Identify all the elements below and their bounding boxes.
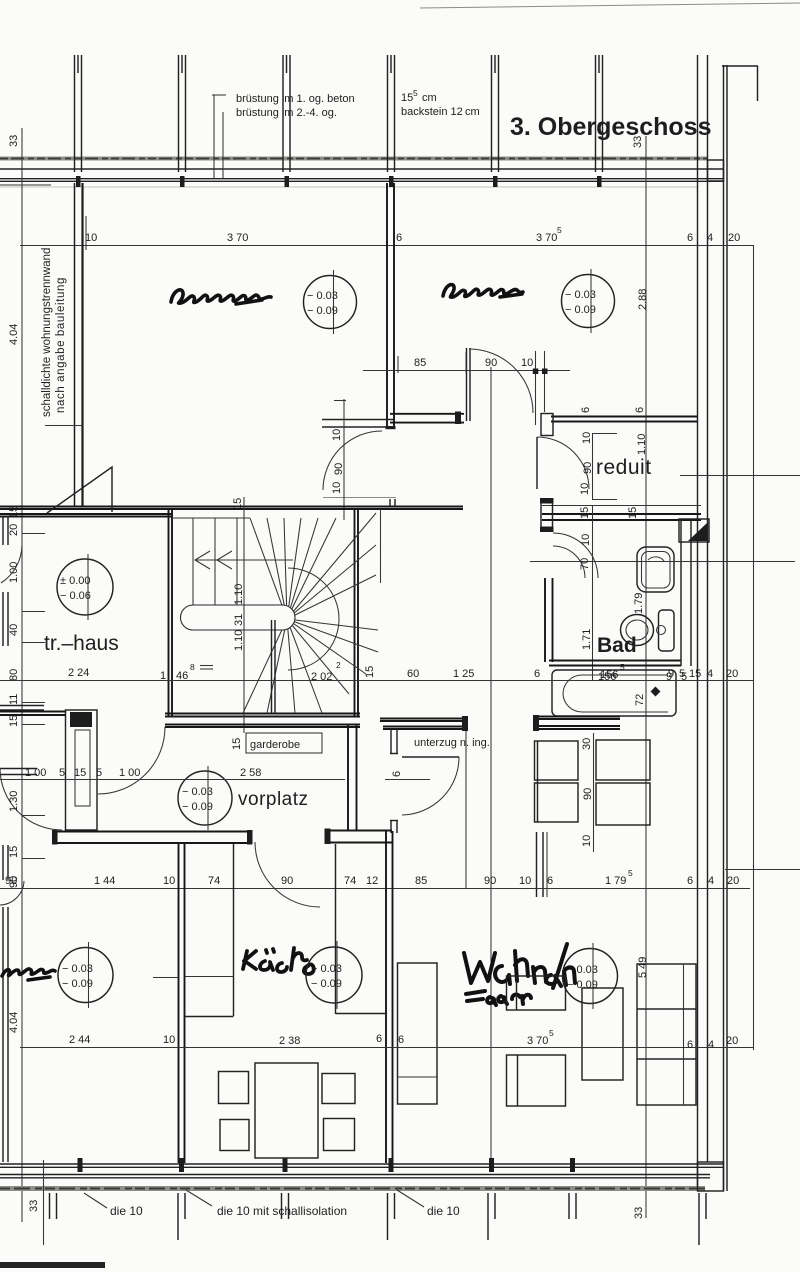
svg-text:46: 46 [176,670,188,682]
svg-text:15: 15 [231,738,243,750]
svg-text:− 0.09: − 0.09 [182,801,213,813]
svg-text:nach angabe bauleitung: nach angabe bauleitung [55,277,67,413]
svg-text:33: 33 [632,136,644,148]
svg-text:3 70: 3 70 [536,232,557,244]
svg-text:31: 31 [233,614,245,626]
svg-text:5: 5 [59,767,65,779]
svg-text:90: 90 [5,875,17,887]
svg-text:1.79: 1.79 [633,593,645,614]
svg-text:20: 20 [728,232,740,244]
svg-text:6: 6 [391,771,403,777]
svg-text:2 02: 2 02 [311,671,332,683]
svg-text:156: 156 [600,669,618,681]
svg-text:15: 15 [8,846,20,858]
svg-text:74: 74 [344,875,356,887]
svg-text:6: 6 [687,232,693,244]
svg-text:brüstung im 1. og. beton: brüstung im 1. og. beton [236,93,355,105]
svg-text:30: 30 [581,738,593,750]
svg-text:4.04: 4.04 [8,1012,20,1033]
svg-text:1.71: 1.71 [581,629,593,650]
svg-text:4: 4 [708,1039,714,1051]
svg-text:brüstung im 2.-4. og.: brüstung im 2.-4. og. [236,107,337,119]
svg-text:unterzug n. ing.: unterzug n. ing. [414,737,490,749]
svg-text:3 70: 3 70 [527,1035,548,1047]
svg-text:3. Obergeschoss: 3. Obergeschoss [510,113,711,141]
svg-text:backstein 12 cm: backstein 12 cm [401,106,480,118]
svg-text:1: 1 [160,670,166,682]
svg-text:− 0.03: − 0.03 [565,289,596,301]
svg-text:90: 90 [582,788,594,800]
svg-text:tr.–haus: tr.–haus [44,632,119,655]
svg-text:− 0.03: − 0.03 [311,963,342,975]
svg-text:11: 11 [8,694,20,705]
svg-text:5: 5 [557,225,562,235]
svg-text:10: 10 [579,483,591,495]
svg-text:2.88: 2.88 [637,289,649,310]
svg-text:5: 5 [620,662,625,672]
svg-text:− 0.03: − 0.03 [182,786,213,798]
svg-text:2 38: 2 38 [279,1035,300,1047]
svg-text:− 0.03: − 0.03 [307,290,338,302]
svg-text:cm: cm [422,92,437,104]
svg-text:1 00: 1 00 [119,767,140,779]
svg-text:5: 5 [628,868,633,878]
svg-text:15: 15 [689,668,701,680]
svg-text:90: 90 [333,463,345,475]
svg-text:15: 15 [401,92,413,104]
svg-text:1.00: 1.00 [8,562,20,583]
svg-text:5: 5 [413,88,418,98]
svg-text:10: 10 [163,875,175,887]
svg-text:90: 90 [281,875,293,887]
svg-text:10: 10 [581,432,593,444]
svg-text:4: 4 [707,668,713,680]
svg-text:6: 6 [687,1039,693,1051]
svg-text:6: 6 [398,1034,404,1046]
svg-text:20: 20 [726,668,738,680]
svg-text:90: 90 [484,875,496,887]
svg-text:− 0.09: − 0.09 [311,978,342,990]
svg-text:− 0.09: − 0.09 [62,978,93,990]
svg-text:6: 6 [534,668,540,680]
svg-text:10: 10 [85,232,97,244]
svg-text:4: 4 [707,232,713,244]
svg-text:15: 15 [8,715,20,727]
svg-text:85: 85 [415,875,427,887]
svg-text:15: 15 [579,507,591,519]
svg-text:10: 10 [581,835,593,847]
svg-text:5: 5 [96,767,102,779]
svg-text:10: 10 [519,875,531,887]
svg-text:5: 5 [549,1028,554,1038]
svg-text:15: 15 [627,507,639,519]
svg-text:33: 33 [28,1200,40,1212]
svg-text:20: 20 [727,875,739,887]
svg-text:1.10: 1.10 [233,584,245,605]
svg-text:6: 6 [396,232,402,244]
svg-text:6: 6 [547,875,553,887]
svg-text:40: 40 [8,624,20,636]
svg-text:60: 60 [407,668,419,680]
svg-text:6: 6 [376,1033,382,1045]
svg-text:2 24: 2 24 [68,667,89,679]
svg-text:10: 10 [521,357,533,369]
svg-text:15: 15 [74,767,86,779]
svg-text:1 00: 1 00 [25,767,46,779]
svg-text:2: 2 [336,660,341,670]
svg-text:− 0.09: − 0.09 [565,304,596,316]
svg-text:1.10: 1.10 [636,434,648,455]
svg-text:6: 6 [687,875,693,887]
svg-text:15: 15 [8,506,20,518]
svg-text:garderobe: garderobe [250,739,300,751]
svg-text:10: 10 [331,482,343,494]
svg-text:6: 6 [580,407,592,413]
svg-text:9: 9 [668,668,674,680]
svg-text:1 79: 1 79 [605,875,626,887]
svg-text:10: 10 [331,429,343,441]
svg-text:70: 70 [579,558,591,570]
svg-text:Bad: Bad [597,634,637,657]
svg-text:8: 8 [190,662,195,672]
svg-text:1.10: 1.10 [233,630,245,651]
svg-text:15: 15 [364,666,376,678]
svg-text:85: 85 [414,357,426,369]
svg-text:4.04: 4.04 [8,324,20,345]
svg-text:− 0.09: − 0.09 [307,305,338,317]
svg-text:4: 4 [708,875,714,887]
svg-text:6: 6 [634,407,646,413]
svg-text:schalldichte wohnungstrennwand: schalldichte wohnungstrennwand [41,248,53,417]
svg-text:10: 10 [163,1034,175,1046]
svg-text:3 70: 3 70 [227,232,248,244]
svg-text:vorplatz: vorplatz [238,789,309,810]
svg-text:± 0.00: ± 0.00 [60,575,91,587]
svg-text:20: 20 [8,524,20,536]
svg-text:die 10: die 10 [427,1204,460,1218]
svg-text:33: 33 [633,1207,645,1219]
svg-text:20: 20 [726,1035,738,1047]
svg-text:74: 74 [208,875,220,887]
svg-text:2 44: 2 44 [69,1034,90,1046]
svg-text:1 25: 1 25 [453,668,474,680]
svg-text:33: 33 [8,135,20,147]
svg-text:die 10 mit schallisolation: die 10 mit schallisolation [217,1204,347,1218]
svg-text:12: 12 [366,875,378,887]
svg-text:80: 80 [8,669,20,681]
svg-text:15: 15 [232,498,244,510]
svg-text:2 58: 2 58 [240,767,261,779]
svg-text:− 0.03: − 0.03 [567,964,598,976]
svg-text:1 44: 1 44 [94,875,115,887]
svg-text:72: 72 [634,694,646,706]
svg-text:− 0.06: − 0.06 [60,590,91,602]
svg-text:5 49: 5 49 [637,957,649,978]
svg-text:− 0.03: − 0.03 [62,963,93,975]
svg-text:reduit: reduit [596,456,652,479]
svg-text:10: 10 [580,534,592,546]
svg-text:die 10: die 10 [110,1204,143,1218]
svg-text:5: 5 [679,668,685,680]
